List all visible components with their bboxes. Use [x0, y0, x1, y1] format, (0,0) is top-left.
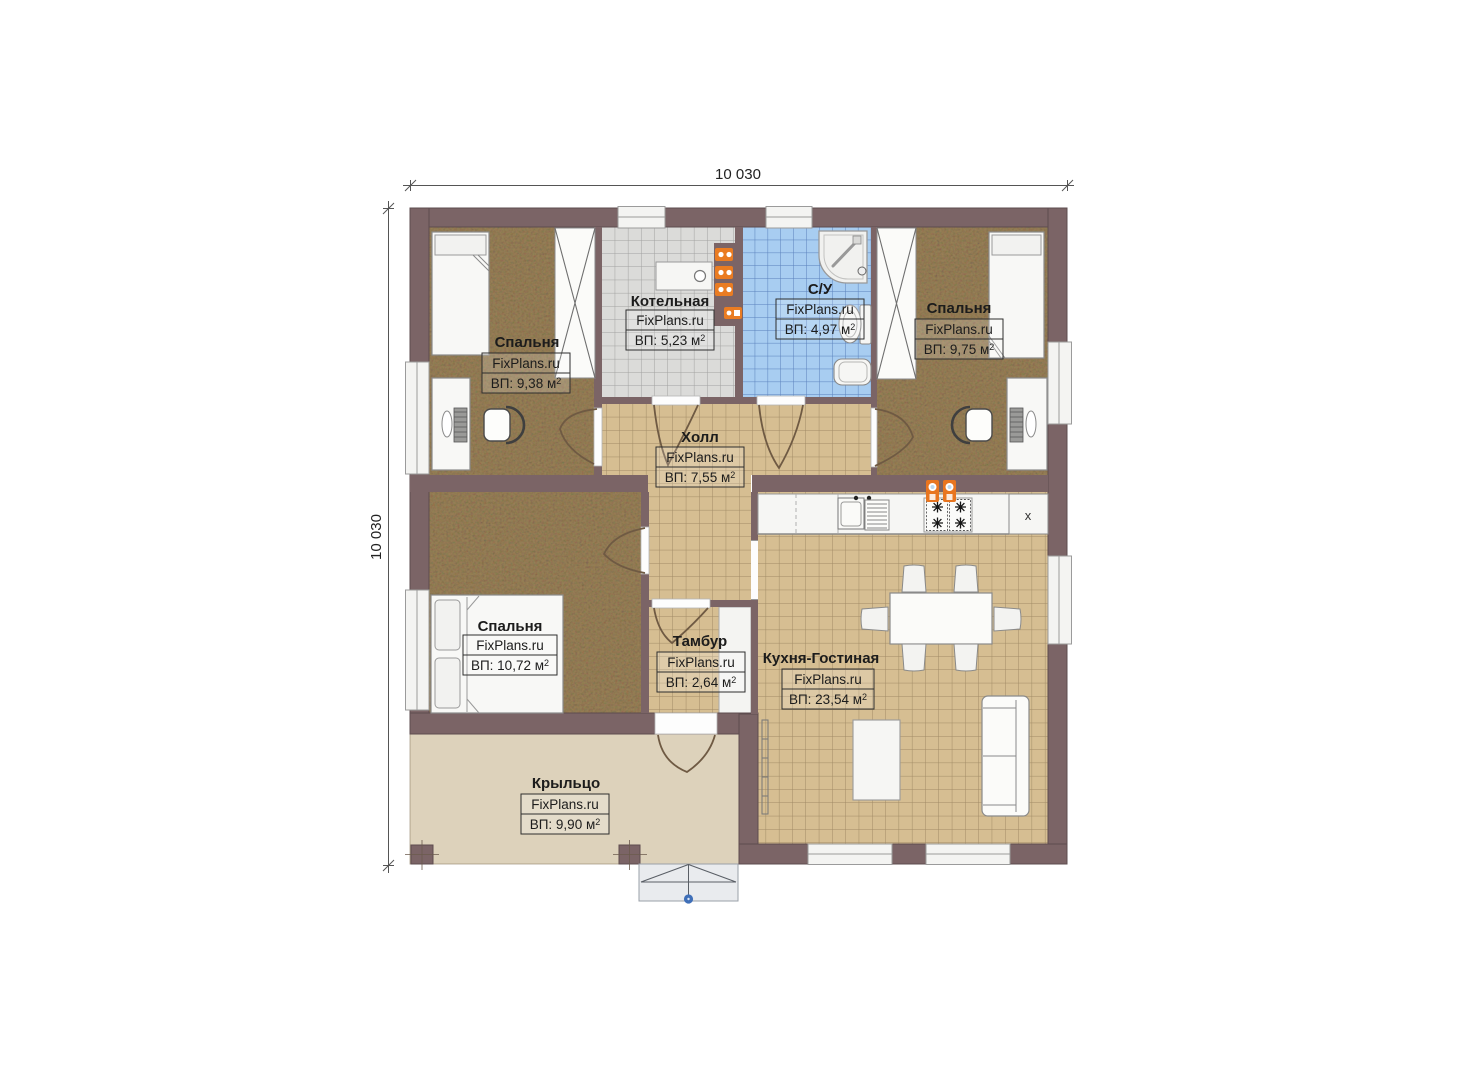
svg-text:x: x [1025, 508, 1032, 523]
svg-text:ВП: 9,38 м2: ВП: 9,38 м2 [491, 376, 562, 391]
svg-text:ВП: 9,90 м2: ВП: 9,90 м2 [530, 817, 601, 832]
svg-text:ВП: 9,75 м2: ВП: 9,75 м2 [924, 342, 995, 357]
svg-text:Кухня-Гостиная: Кухня-Гостиная [763, 650, 880, 667]
svg-text:FixPlans.ru: FixPlans.ru [476, 638, 544, 653]
svg-text:FixPlans.ru: FixPlans.ru [666, 450, 734, 465]
svg-text:FixPlans.ru: FixPlans.ru [786, 302, 854, 317]
svg-text:10 030: 10 030 [715, 166, 761, 183]
svg-text:ВП: 5,23 м2: ВП: 5,23 м2 [635, 333, 706, 348]
svg-text:ВП: 23,54 м2: ВП: 23,54 м2 [789, 692, 867, 707]
svg-text:FixPlans.ru: FixPlans.ru [636, 313, 704, 328]
svg-text:ВП: 2,64 м2: ВП: 2,64 м2 [666, 675, 737, 690]
svg-text:ВП: 4,97 м2: ВП: 4,97 м2 [785, 322, 856, 337]
svg-text:Крыльцо: Крыльцо [532, 775, 600, 792]
svg-text:FixPlans.ru: FixPlans.ru [925, 322, 993, 337]
svg-text:Тамбур: Тамбур [673, 633, 727, 650]
svg-text:FixPlans.ru: FixPlans.ru [794, 672, 862, 687]
svg-text:FixPlans.ru: FixPlans.ru [667, 655, 735, 670]
svg-text:FixPlans.ru: FixPlans.ru [492, 356, 560, 371]
svg-text:Котельная: Котельная [631, 293, 710, 310]
svg-text:FixPlans.ru: FixPlans.ru [531, 797, 599, 812]
svg-text:ВП: 10,72 м2: ВП: 10,72 м2 [471, 658, 549, 673]
svg-text:10 030: 10 030 [368, 514, 385, 560]
svg-text:Холл: Холл [681, 429, 719, 446]
svg-text:Спальня: Спальня [495, 334, 560, 351]
svg-text:С/У: С/У [808, 281, 833, 298]
svg-text:ВП: 7,55 м2: ВП: 7,55 м2 [665, 470, 736, 485]
svg-text:Спальня: Спальня [927, 300, 992, 317]
svg-text:Спальня: Спальня [478, 618, 543, 635]
